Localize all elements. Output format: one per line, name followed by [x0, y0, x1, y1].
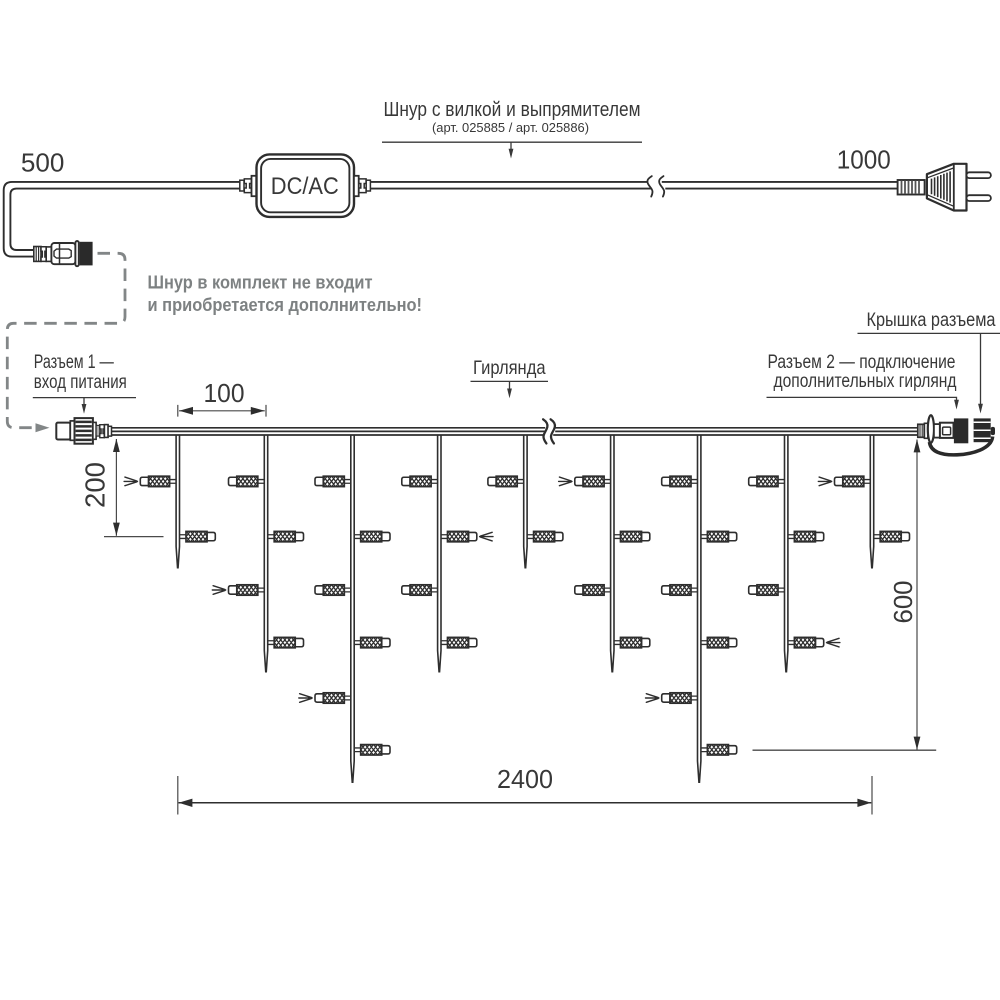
svg-text:Гирлянда: Гирлянда [473, 357, 546, 379]
svg-text:Крышка разъема: Крышка разъема [867, 310, 996, 331]
svg-text:500: 500 [21, 149, 65, 177]
svg-text:и приобретается дополнительно!: и приобретается дополнительно! [148, 294, 423, 315]
svg-text:вход питания: вход питания [34, 372, 127, 393]
svg-text:100: 100 [204, 378, 245, 408]
svg-text:1000: 1000 [837, 147, 891, 175]
svg-text:дополнительных гирлянд: дополнительных гирлянд [774, 371, 957, 392]
svg-text:600: 600 [888, 581, 918, 624]
svg-text:Шнур с вилкой и выпрямителем: Шнур с вилкой и выпрямителем [384, 99, 641, 121]
svg-text:200: 200 [80, 462, 111, 508]
svg-text:(арт. 025885 / арт. 025886): (арт. 025885 / арт. 025886) [432, 120, 589, 135]
svg-text:Шнур в комплект не входит: Шнур в комплект не входит [148, 272, 373, 293]
svg-text:2400: 2400 [497, 766, 553, 794]
svg-text:Разъем 1 —: Разъем 1 — [34, 352, 114, 373]
svg-text:DC/AC: DC/AC [271, 173, 339, 200]
svg-text:Разъем 2 — подключение: Разъем 2 — подключение [768, 352, 956, 373]
